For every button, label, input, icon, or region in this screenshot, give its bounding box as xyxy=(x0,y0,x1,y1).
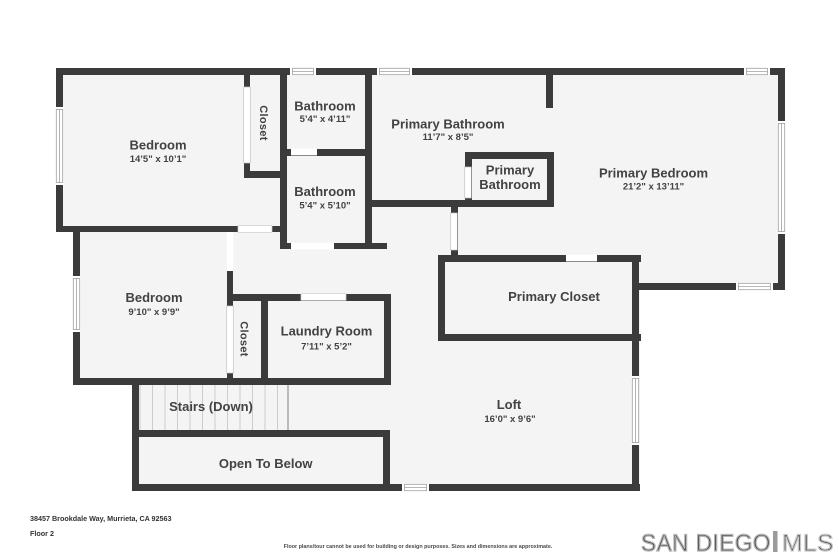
svg-text:Primary Bedroom: Primary Bedroom xyxy=(599,166,708,181)
svg-text:Open To Below: Open To Below xyxy=(219,456,314,471)
svg-text:Floor 2: Floor 2 xyxy=(30,529,54,538)
svg-text:SAN DIEGO: SAN DIEGO xyxy=(641,530,771,557)
svg-text:Laundry Room: Laundry Room xyxy=(281,324,373,339)
svg-text:16’0" x 9’6": 16’0" x 9’6" xyxy=(484,414,535,425)
svg-text:Closet: Closet xyxy=(238,321,250,356)
svg-text:5’4" x 4’11": 5’4" x 4’11" xyxy=(300,114,351,125)
svg-text:Stairs (Down): Stairs (Down) xyxy=(169,399,253,414)
svg-text:Primary Bathroom: Primary Bathroom xyxy=(391,117,504,132)
svg-text:MLS: MLS xyxy=(782,530,834,557)
svg-text:38457 Brookdale Way, Murrieta,: 38457 Brookdale Way, Murrieta, CA 92563 xyxy=(30,514,172,523)
svg-text:Bathroom: Bathroom xyxy=(479,177,540,192)
svg-text:7’11" x 5’2": 7’11" x 5’2" xyxy=(301,342,352,353)
svg-text:21’2" x 13’11": 21’2" x 13’11" xyxy=(623,182,684,193)
svg-text:Bedroom: Bedroom xyxy=(125,290,182,305)
svg-text:Bedroom: Bedroom xyxy=(129,138,186,153)
svg-text:Floor plans/tour cannot be use: Floor plans/tour cannot be used for buil… xyxy=(284,544,553,550)
svg-text:Primary Closet: Primary Closet xyxy=(508,289,600,304)
svg-text:Loft: Loft xyxy=(497,397,522,412)
svg-text:Primary: Primary xyxy=(486,163,535,178)
svg-text:11’7" x 8’5": 11’7" x 8’5" xyxy=(423,132,474,143)
svg-text:Closet: Closet xyxy=(257,105,269,140)
svg-text:9’10" x 9’9": 9’10" x 9’9" xyxy=(128,307,179,318)
svg-text:5’4" x 5’10": 5’4" x 5’10" xyxy=(299,201,350,212)
svg-text:Bathroom: Bathroom xyxy=(294,99,355,114)
svg-text:14’5" x 10’1": 14’5" x 10’1" xyxy=(130,154,187,165)
svg-text:Bathroom: Bathroom xyxy=(294,184,355,199)
